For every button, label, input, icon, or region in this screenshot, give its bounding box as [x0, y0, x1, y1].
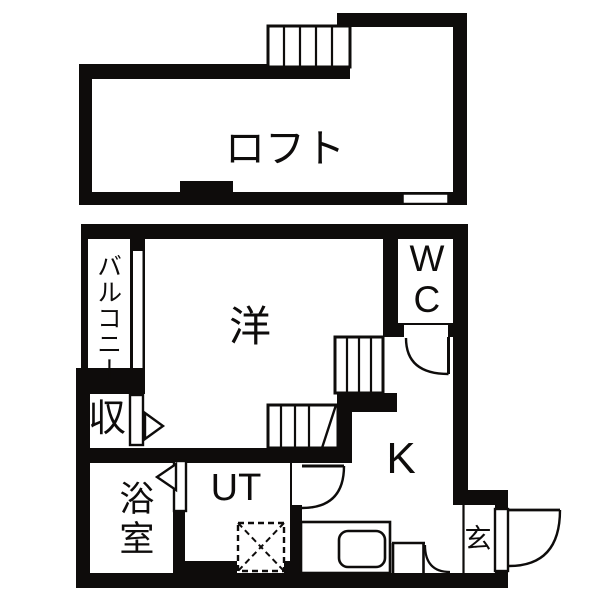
room-kitchen-label: K — [351, 434, 451, 484]
kitchen-sink — [339, 531, 385, 567]
loft-ladder-hatch — [268, 26, 350, 67]
room-loft-label: ロフト — [185, 125, 385, 173]
room-toilet-label: WC — [402, 237, 450, 321]
stairs-upper-flight — [335, 337, 383, 393]
front-door-arc — [509, 510, 560, 566]
floor-plan: ロフト 洋 バルコニー 収 浴室 UT K WC 玄 — [0, 0, 600, 600]
room-balcony-label: バルコニー — [89, 243, 126, 393]
room-bathroom-label: 浴室 — [112, 474, 154, 566]
wc-door — [404, 325, 449, 374]
utility-door-arc — [302, 466, 344, 508]
kitchen-entrance-door-arc — [425, 545, 450, 572]
front-door — [495, 509, 560, 571]
storage-door-marker-icon — [145, 413, 163, 439]
bathroom-door — [157, 461, 186, 511]
loft-window — [403, 194, 448, 204]
utility-door — [291, 463, 344, 508]
room-western-label: 洋 — [200, 303, 300, 351]
washing-machine-area — [238, 523, 284, 571]
balcony-window — [133, 251, 143, 368]
stairs-lower-flight — [268, 405, 338, 448]
kitchen-counter — [301, 522, 390, 573]
kitchen-entrance-door — [392, 543, 450, 573]
wc-door-arc — [406, 338, 449, 374]
room-utility-label: UT — [186, 467, 286, 511]
room-storage-label: 収 — [67, 398, 147, 442]
room-entrance-label: 玄 — [458, 524, 498, 554]
bathroom-door-marker-icon — [157, 464, 176, 490]
